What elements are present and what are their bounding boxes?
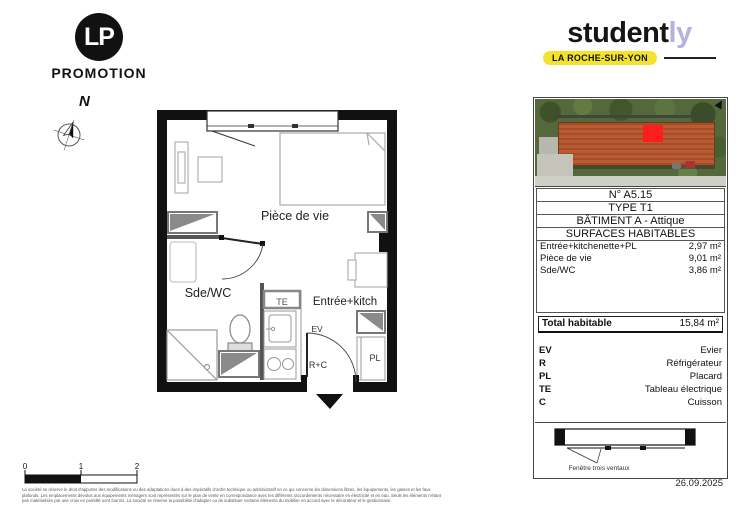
lp-monogram-icon: LP [75, 13, 123, 61]
building-row: BÂTIMENT A - Attique [536, 214, 725, 228]
vanity [170, 242, 196, 282]
lp-promotion-logo: LP PROMOTION [51, 13, 147, 81]
surface-value: 3,86 m² [689, 265, 721, 277]
scale-bar: 0 1 2 [20, 461, 150, 487]
pl-label: PL [369, 353, 380, 363]
entrance-label: Entrée+kitch [313, 296, 377, 308]
surfaces-list: Entrée+kitchenette+PL 2,97 m² Pièce de v… [536, 238, 725, 313]
unit-info-table: N° A5.15 TYPE T1 BÂTIMENT A - Attique SU… [536, 188, 725, 241]
living-room-label: Pièce de vie [261, 209, 329, 223]
shower [167, 330, 217, 380]
location-badge: LA ROCHE-SUR-YON [543, 51, 657, 65]
entrance-marker-triangle [316, 394, 343, 409]
legend-abbr: C [539, 396, 546, 409]
photo-car [685, 161, 695, 168]
photo-car [672, 163, 681, 169]
legend-label: Tableau électrique [645, 383, 722, 396]
surface-value: 9,01 m² [689, 253, 721, 265]
surface-value: 2,97 m² [689, 241, 721, 253]
legal-line: pas matérialisés par une croix en pointi… [22, 498, 527, 504]
rc-label: R+C [309, 360, 328, 370]
ev-label: EV [311, 324, 323, 334]
legend-row: TE Tableau électrique [539, 383, 722, 396]
bathroom-label: Sde/WC [185, 286, 232, 300]
scale-tick-label: 0 [23, 462, 28, 471]
window-symbol: Fenêtre trois ventaux [535, 423, 726, 477]
legend-label: Réfrigérateur [667, 357, 722, 370]
legend: EV Evier R Réfrigérateur PL Placard TE T… [539, 344, 722, 409]
plan-sheet-page: LP PROMOTION N [0, 0, 750, 531]
surface-label: Entrée+kitchenette+PL [540, 241, 637, 253]
legend-row: C Cuisson [539, 396, 722, 409]
surface-label: Pièce de vie [540, 253, 592, 265]
legend-abbr: PL [539, 370, 551, 383]
compass-rose-icon [50, 116, 88, 154]
lp-monogram-text: LP [84, 23, 114, 52]
window-caption: Fenêtre trois ventaux [568, 465, 630, 472]
badge-line [664, 57, 716, 59]
kitchen-sink [264, 311, 296, 347]
legal-disclaimer: La société se réserve le droit d'apporte… [22, 487, 527, 504]
legend-row: R Réfrigérateur [539, 357, 722, 370]
te-label: TE [276, 297, 288, 307]
lp-promotion-name: PROMOTION [51, 65, 147, 81]
wardrobe-left [168, 212, 217, 233]
total-value: 15,84 m² [680, 318, 719, 330]
surface-row: Sde/WC 3,86 m² [540, 265, 721, 277]
plan-date: 26.09.2025 [533, 478, 723, 489]
total-area-box: Total habitable 15,84 m² [538, 316, 723, 333]
legend-label: Placard [690, 370, 722, 383]
legend-abbr: EV [539, 344, 552, 357]
studently-word-accent: ly [669, 17, 692, 49]
photo-building-roof [558, 122, 715, 166]
total-label: Total habitable [542, 318, 612, 330]
unit-number-row: N° A5.15 [536, 188, 725, 202]
floor-plan: TE [155, 105, 405, 415]
scale-tick-label: 1 [79, 462, 84, 471]
legend-label: Cuisson [688, 396, 722, 409]
studently-word-main: student [567, 17, 668, 49]
legend-abbr: TE [539, 383, 551, 396]
electrical-panel: TE [264, 291, 300, 308]
window-symbol-box: Fenêtre trois ventaux [535, 422, 726, 477]
photo-path [535, 176, 726, 186]
photo-wall [553, 115, 715, 118]
legend-label: Evier [700, 344, 722, 357]
cooktop [264, 349, 296, 379]
north-label: N [79, 93, 90, 110]
unit-type-row: TYPE T1 [536, 201, 725, 215]
toilet [228, 315, 252, 353]
wardrobe-right [368, 212, 387, 232]
studently-logo: studently LA ROCHE-SUR-YON [533, 18, 726, 65]
surface-label: Sde/WC [540, 265, 575, 277]
surface-row: Entrée+kitchenette+PL 2,97 m² [540, 241, 721, 253]
aerial-photo [535, 99, 726, 187]
legend-abbr: R [539, 357, 546, 370]
wardrobe-entry [357, 311, 385, 333]
legend-row: PL Placard [539, 370, 722, 383]
photo-north-arrow-icon [715, 99, 726, 109]
photo-courtyard [537, 154, 573, 176]
wardrobe-bathroom [219, 351, 259, 377]
scale-tick-label: 2 [135, 462, 140, 471]
legend-row: EV Evier [539, 344, 722, 357]
bed [280, 133, 385, 205]
info-panel: N° A5.15 TYPE T1 BÂTIMENT A - Attique SU… [533, 97, 728, 479]
surface-row: Pièce de vie 9,01 m² [540, 253, 721, 265]
unit-location-marker [643, 125, 663, 142]
